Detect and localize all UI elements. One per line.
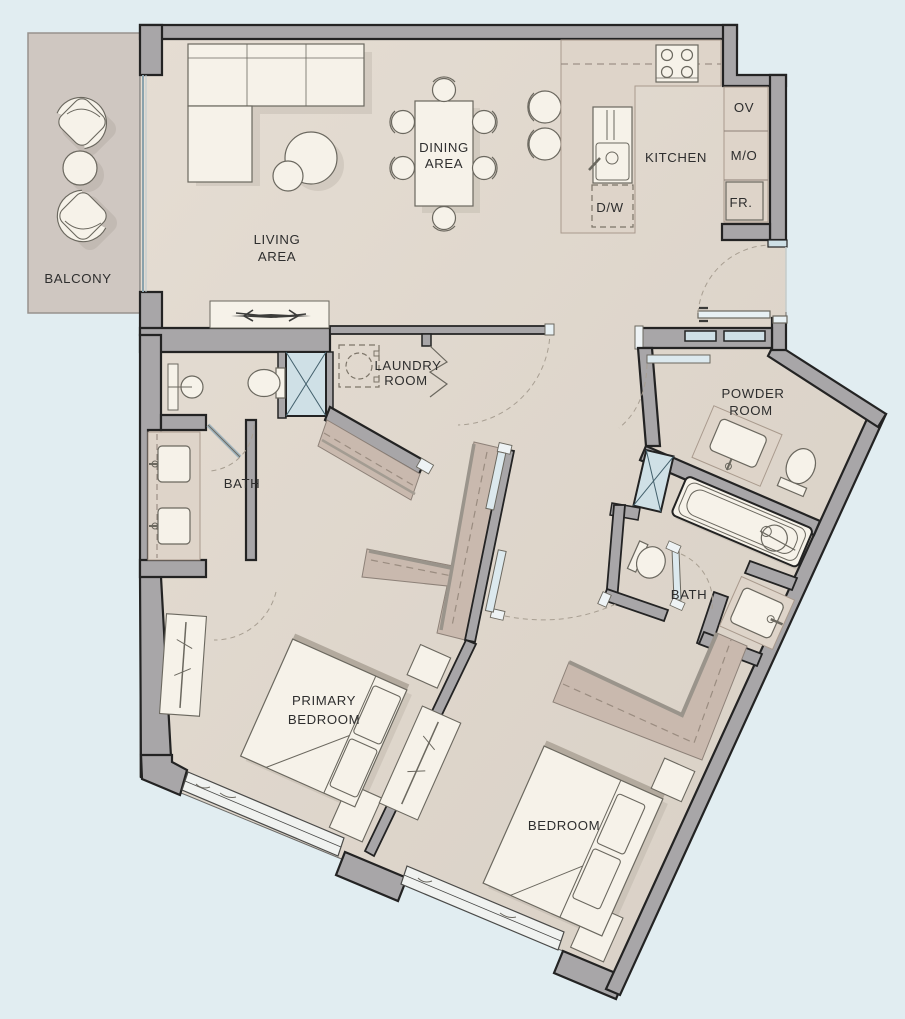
svg-text:ROOM: ROOM bbox=[729, 403, 772, 418]
svg-text:DINING: DINING bbox=[419, 140, 469, 155]
svg-text:LAUNDRY: LAUNDRY bbox=[375, 358, 442, 373]
svg-text:AREA: AREA bbox=[425, 156, 463, 171]
svg-text:AREA: AREA bbox=[258, 249, 296, 264]
svg-text:POWDER: POWDER bbox=[722, 386, 785, 401]
svg-text:BEDROOM: BEDROOM bbox=[288, 712, 360, 727]
svg-text:ROOM: ROOM bbox=[384, 373, 427, 388]
svg-text:BATH: BATH bbox=[224, 476, 261, 491]
svg-text:D/W: D/W bbox=[596, 200, 623, 215]
svg-text:LIVING: LIVING bbox=[254, 232, 301, 247]
svg-text:BATH: BATH bbox=[671, 587, 708, 602]
svg-text:KITCHEN: KITCHEN bbox=[645, 150, 707, 165]
svg-text:BEDROOM: BEDROOM bbox=[528, 818, 600, 833]
svg-text:BALCONY: BALCONY bbox=[44, 271, 111, 286]
svg-text:PRIMARY: PRIMARY bbox=[292, 693, 356, 708]
svg-text:M/O: M/O bbox=[731, 148, 758, 163]
svg-text:OV: OV bbox=[734, 100, 754, 115]
svg-text:FR.: FR. bbox=[729, 195, 752, 210]
